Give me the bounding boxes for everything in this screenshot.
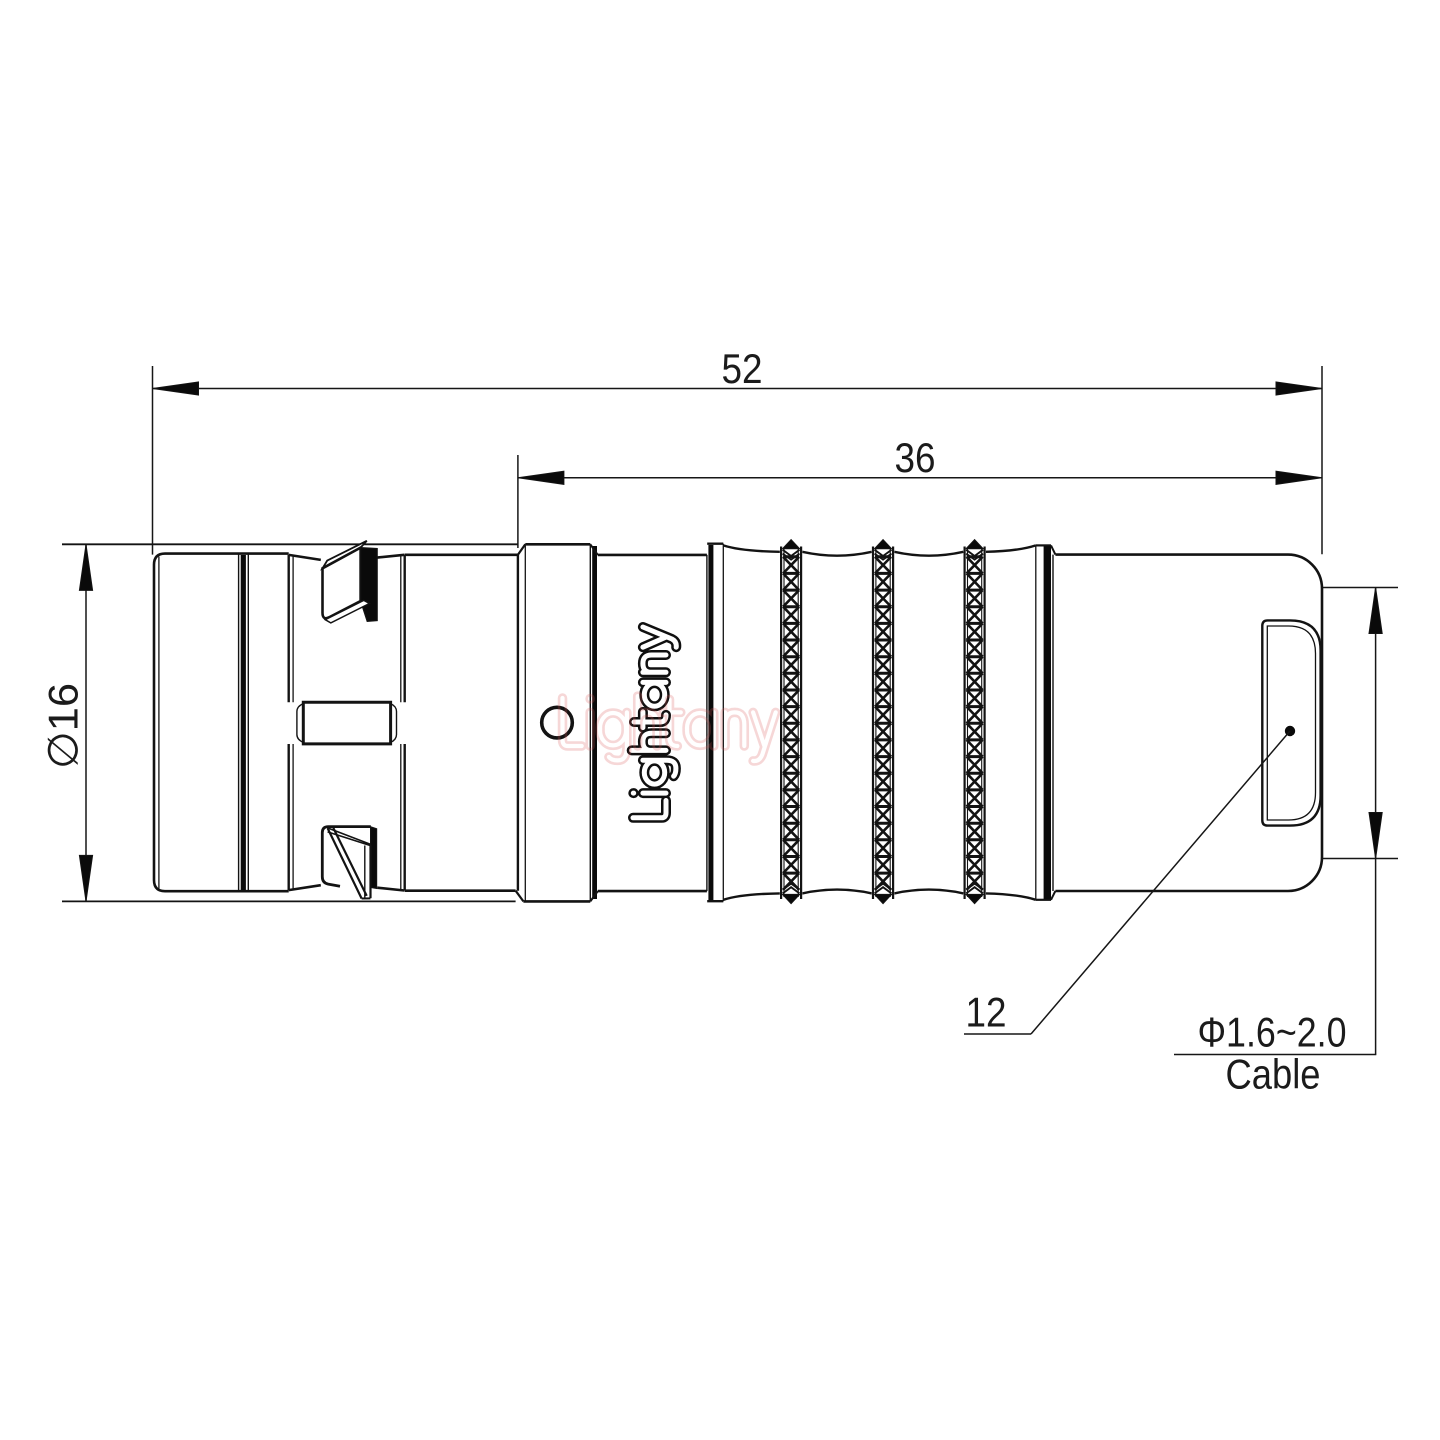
svg-text:Φ1.6~2.0: Φ1.6~2.0 bbox=[1198, 1009, 1347, 1056]
svg-text:36: 36 bbox=[895, 434, 936, 481]
svg-text:52: 52 bbox=[722, 345, 763, 392]
svg-text:∅16: ∅16 bbox=[40, 683, 87, 769]
svg-text:Cable: Cable bbox=[1226, 1050, 1321, 1097]
svg-text:12: 12 bbox=[966, 988, 1007, 1035]
